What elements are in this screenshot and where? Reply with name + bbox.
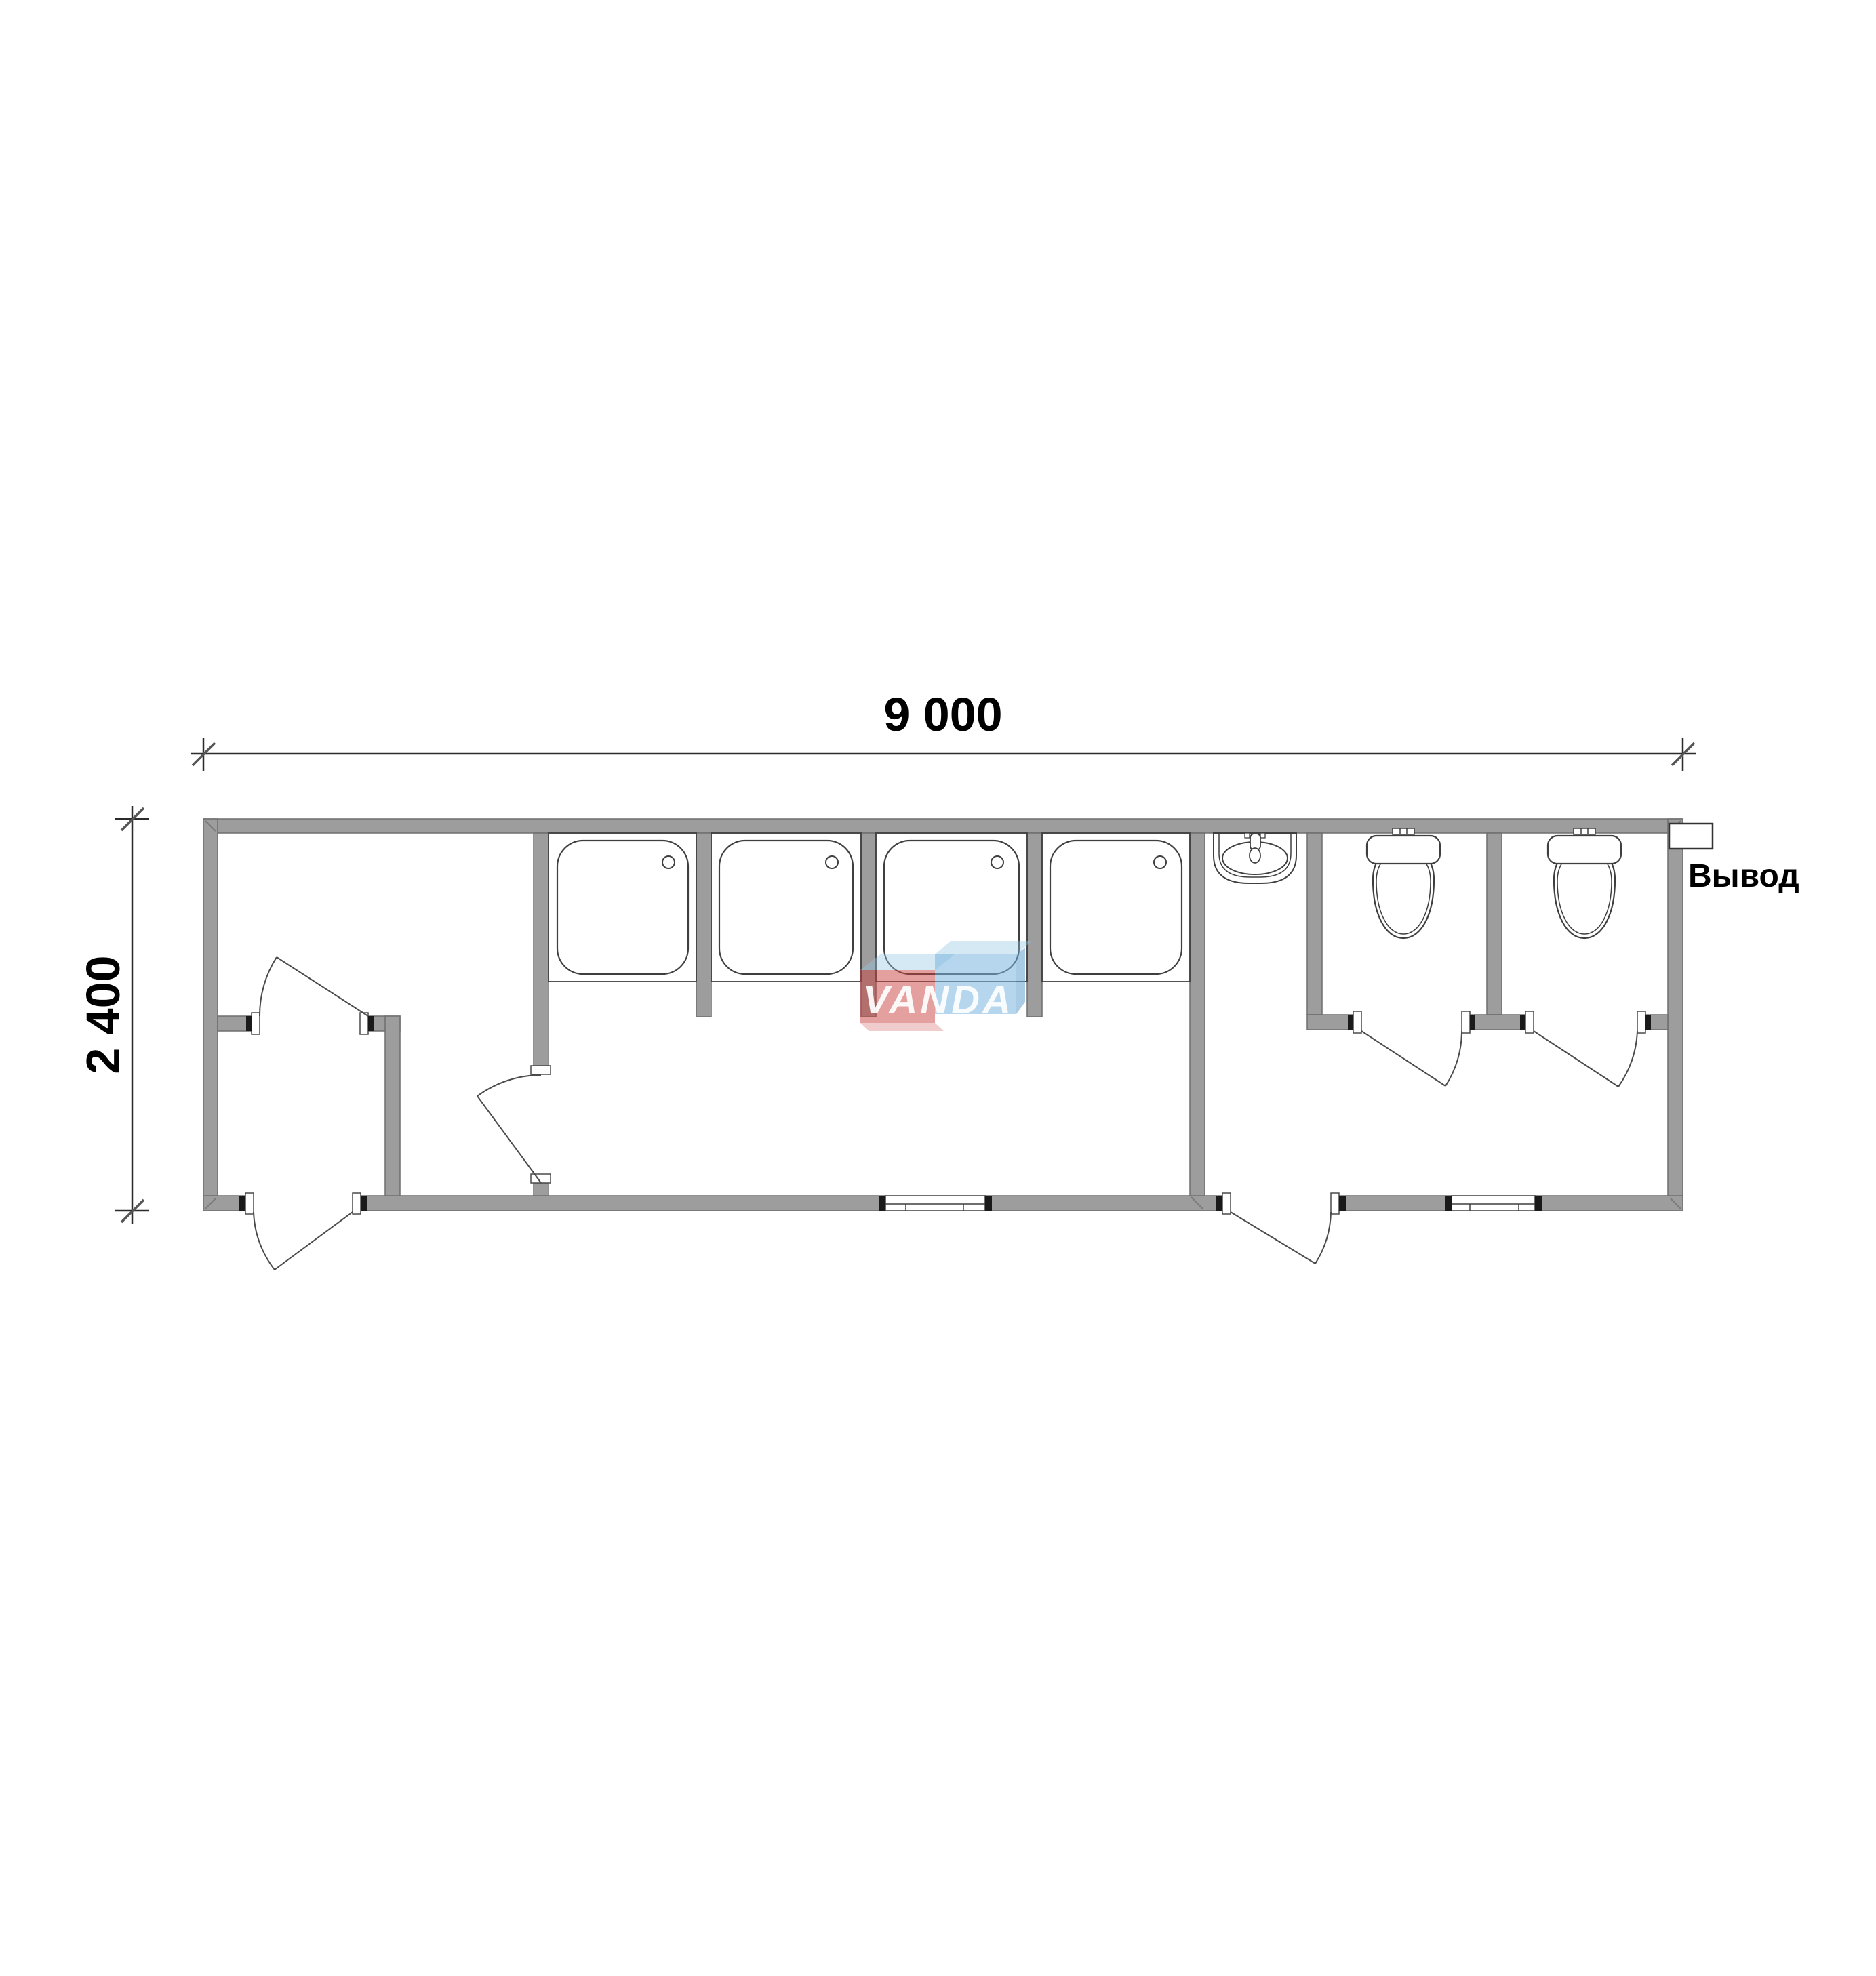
watermark-logo: VANDA: [860, 941, 1032, 1031]
wall-bottom-seg: [361, 1196, 885, 1211]
watermark-text: VANDA: [863, 978, 1014, 1022]
watermark-blue-top-face: [935, 941, 1032, 954]
wall-toilet-partition: [1487, 833, 1502, 1015]
sink-icon: [1214, 833, 1296, 883]
window-icon: [1445, 1196, 1542, 1211]
shower-tray-icon: [557, 841, 688, 974]
dimension-width-label: 9 000: [883, 688, 1002, 741]
floor-plan-drawing: 9 000 2 400: [0, 0, 1876, 1976]
door-swing-icon: [1231, 1212, 1331, 1264]
watermark-blue-side-face: [1016, 948, 1025, 1014]
wall-shower-divider-stub: [534, 1183, 548, 1196]
shower-drain-icon: [662, 856, 675, 868]
outlet-label: Вывод: [1688, 858, 1799, 894]
door-swing-icon: [477, 1075, 541, 1183]
shower-enclosure: [548, 833, 696, 982]
shower-drain-icon: [991, 856, 1003, 868]
door-swing-icon: [260, 957, 368, 1016]
wall-bottom-seg: [1339, 1196, 1452, 1211]
wall-stall-front: [1307, 1015, 1353, 1030]
wall-shower-partition: [696, 833, 711, 1017]
shower-tray-icon: [1050, 841, 1182, 974]
shower-drain-icon: [1154, 856, 1166, 868]
wall-top: [203, 819, 1683, 833]
shower-enclosure: [711, 833, 861, 982]
shower-stall: [548, 833, 696, 982]
shower-drain-icon: [826, 856, 838, 868]
wall-entry-room: [385, 1016, 400, 1196]
shower-stall: [711, 833, 861, 982]
wall-end-caps: [239, 1015, 1651, 1211]
toilet-icon: [1548, 828, 1621, 938]
wall-bottom-seg: [985, 1196, 1222, 1211]
window-icon: [879, 1196, 992, 1211]
wall-bottom-seg: [1535, 1196, 1683, 1211]
wall-stall-front: [1470, 1015, 1525, 1030]
watermark-red-bottom-face: [860, 1023, 944, 1031]
shower-stall: [1042, 833, 1190, 982]
door-swing-icon: [254, 1212, 353, 1270]
floor-plan-page: 9 000 2 400: [0, 0, 1876, 1976]
wall-toilet-partition: [1307, 833, 1322, 1015]
door-swing-icon: [1534, 1031, 1637, 1087]
wall-washroom-divider: [1190, 833, 1205, 1196]
shower-tray-icon: [719, 841, 853, 974]
outlet-box: [1669, 824, 1713, 849]
dimension-height-label: 2 400: [77, 955, 129, 1074]
wall-right: [1668, 819, 1683, 1211]
dimension-top: [191, 738, 1696, 771]
wall-shower-divider: [534, 833, 548, 1067]
shower-enclosure: [1042, 833, 1190, 982]
door-swing-icon: [1361, 1031, 1462, 1086]
wall-shower-partition: [1027, 833, 1042, 1017]
wall-left: [203, 819, 218, 1211]
door-jambs: [245, 1011, 1645, 1214]
toilet-icon: [1367, 828, 1440, 938]
